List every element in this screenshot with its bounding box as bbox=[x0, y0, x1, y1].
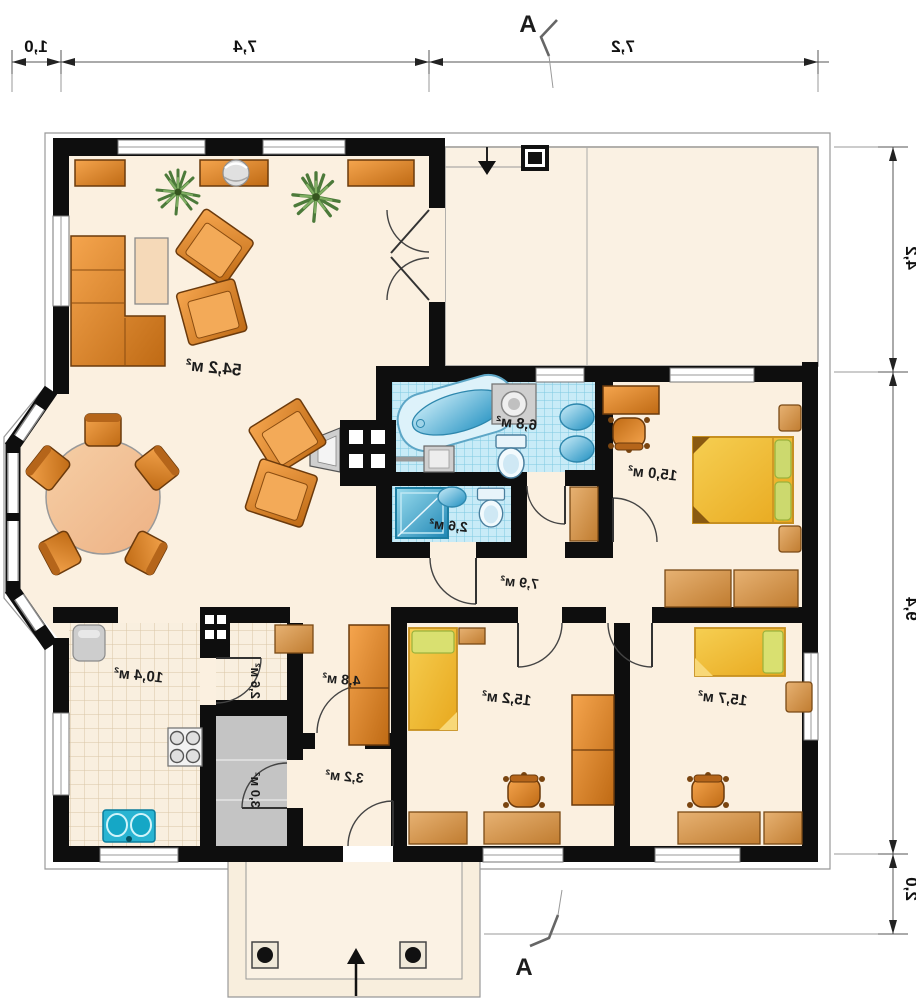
linen-cabinet bbox=[570, 487, 598, 541]
cabinet bbox=[275, 625, 313, 653]
single-bed bbox=[409, 628, 457, 730]
desk bbox=[603, 386, 659, 414]
shelf bbox=[459, 628, 485, 644]
boiler-area-label: 3,0 м² bbox=[248, 772, 263, 808]
section-marker-top: A bbox=[519, 11, 557, 88]
nightstand bbox=[779, 526, 801, 552]
kitchen-sink bbox=[103, 810, 155, 842]
window bbox=[53, 216, 69, 306]
dim-right-2: 9,4 bbox=[902, 597, 916, 621]
dim-top-3: 7,2 bbox=[611, 37, 635, 56]
desk bbox=[764, 812, 802, 844]
floor-plan-page: 54,2 м² 6,8 м² 2,6 м² 15,0 м² 7,9 м² 10,… bbox=[0, 0, 916, 1000]
desk bbox=[678, 812, 760, 844]
toilet bbox=[496, 435, 526, 478]
chimney-vent bbox=[521, 145, 549, 171]
stove bbox=[168, 728, 202, 766]
window bbox=[536, 368, 584, 382]
dim-right-1: 4,2 bbox=[902, 246, 916, 270]
water-heater bbox=[424, 446, 454, 472]
porch bbox=[228, 862, 480, 997]
section-marker-bottom: A bbox=[515, 890, 562, 981]
sideboard bbox=[75, 160, 125, 186]
window bbox=[670, 368, 754, 382]
window bbox=[263, 140, 345, 154]
pantry-area-label: 2,6 м² bbox=[248, 663, 263, 699]
dimension-top: 1,0 7,4 7,2 bbox=[12, 37, 829, 92]
washbasin bbox=[560, 436, 594, 462]
wardrobe bbox=[734, 570, 798, 607]
window bbox=[100, 848, 178, 862]
porch-column bbox=[252, 942, 278, 968]
kitchen-chimney bbox=[200, 607, 230, 659]
desk bbox=[409, 812, 467, 844]
window bbox=[655, 848, 740, 862]
coffee-table bbox=[135, 238, 168, 304]
dim-right-3: 2,0 bbox=[902, 877, 916, 901]
wardrobe bbox=[665, 570, 731, 607]
single-bed bbox=[695, 628, 785, 676]
toilet bbox=[478, 488, 505, 527]
porch-column bbox=[400, 942, 426, 968]
section-letter-top: A bbox=[519, 11, 536, 38]
dim-top-2: 7,4 bbox=[233, 37, 257, 56]
desk bbox=[484, 812, 560, 844]
dim-top-1: 1,0 bbox=[24, 37, 48, 56]
double-bed bbox=[693, 437, 793, 523]
nightstand bbox=[786, 682, 812, 712]
house: 54,2 м² 6,8 м² 2,6 м² 15,0 м² 7,9 м² 10,… bbox=[4, 133, 830, 869]
floor-plan-canvas: 54,2 м² 6,8 м² 2,6 м² 15,0 м² 7,9 м² 10,… bbox=[0, 0, 916, 1000]
window bbox=[118, 140, 205, 154]
terrace bbox=[445, 145, 818, 366]
window bbox=[53, 713, 69, 795]
washbasin bbox=[438, 487, 466, 507]
washbasin bbox=[560, 404, 594, 430]
nightstand bbox=[779, 405, 801, 431]
window bbox=[483, 848, 563, 862]
section-letter-bottom: A bbox=[515, 954, 532, 981]
sideboard bbox=[348, 160, 414, 186]
vase bbox=[223, 160, 249, 186]
